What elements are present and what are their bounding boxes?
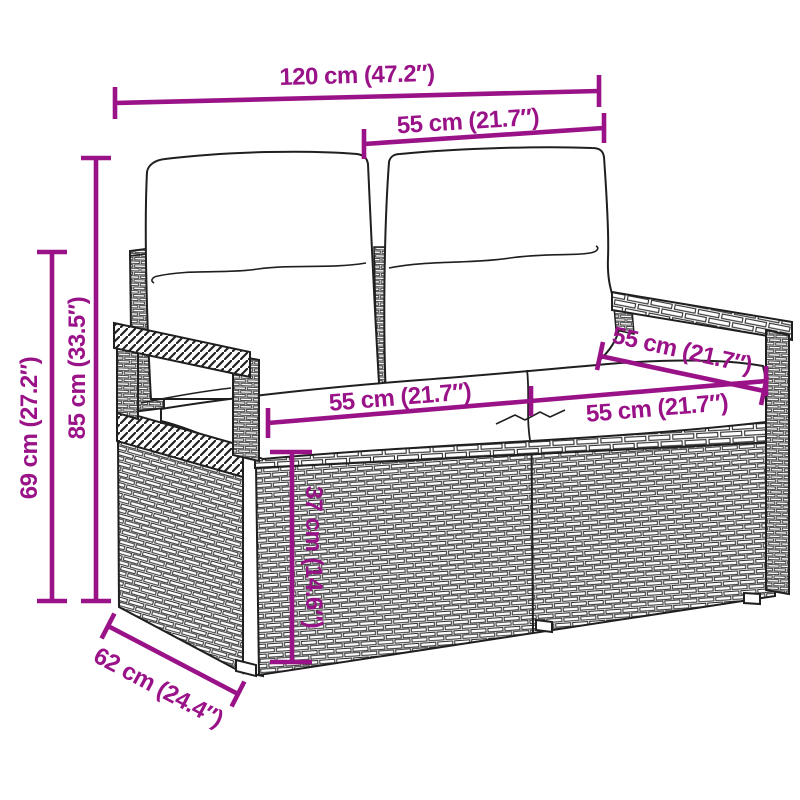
- foot-right: [744, 593, 760, 604]
- foot-middle: [536, 620, 552, 632]
- dim-label-seat-height: 37 cm (14.6″): [301, 486, 325, 628]
- back-cushion-right: [384, 147, 619, 399]
- base-side-face: [118, 440, 243, 673]
- dimension-diagram: 120 cm (47.2″) 55 cm (21.7″) 85 cm (33.5…: [0, 0, 800, 800]
- dim-label-armrest-height: 69 cm (27.2″): [18, 357, 42, 499]
- dim-label-overall-width: 120 cm (47.2″): [279, 62, 435, 90]
- dim-label-overall-height: 85 cm (33.5″): [66, 297, 90, 439]
- armrest-right-end-post: [766, 330, 789, 594]
- base-front-face: [256, 441, 775, 675]
